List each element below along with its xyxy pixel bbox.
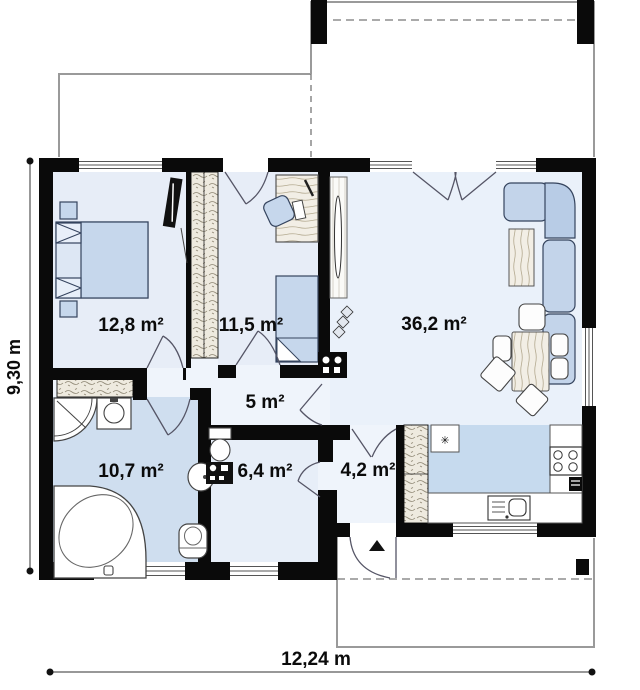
dimension-height-label: 9,30 m [4, 339, 24, 395]
stove [550, 447, 582, 475]
french-door-opening-terrace [412, 158, 496, 172]
toilet [179, 524, 207, 558]
boiler-icon: ✳ [440, 435, 449, 447]
entrance-porch [337, 537, 594, 647]
vestibule-label: 4,2 m² [341, 460, 396, 481]
floor-plan: ✳ [0, 0, 640, 690]
terrace-column-left [311, 0, 327, 44]
window-wc [230, 562, 278, 580]
bedroom-2-label: 11,5 m² [219, 315, 283, 336]
wall-right-upper [582, 172, 596, 328]
entrance-arrow-icon [369, 540, 385, 551]
bathroom-label: 10,7 m² [98, 461, 163, 482]
nightstand [60, 202, 77, 219]
washing-machine [206, 462, 233, 484]
wall-central [318, 172, 330, 352]
door-opening-bedroom2-garden [223, 158, 268, 172]
terrace [311, 0, 594, 157]
tv [335, 196, 342, 278]
hall-closet [57, 379, 133, 397]
window-living-east [582, 328, 596, 406]
window-living-right [496, 158, 536, 172]
roof-eaves-outline [59, 74, 311, 157]
pillow [56, 223, 81, 243]
window-kitchen [453, 523, 537, 537]
bedroom-wardrobe [191, 172, 218, 358]
dimension-width-label: 12,24 m [281, 649, 351, 670]
wall-right-lower [582, 406, 596, 537]
nightstand [60, 301, 77, 317]
window-bedroom1 [79, 158, 162, 172]
terrace-column-right [577, 0, 594, 44]
entrance-door-opening [350, 523, 396, 537]
dimension-height: 9,30 m [4, 158, 34, 575]
washbasin [97, 398, 131, 429]
oven [569, 477, 582, 491]
window-living-left [370, 158, 412, 172]
dimension-width: 12,24 m [47, 649, 596, 676]
wc-label: 6,4 m² [238, 461, 293, 482]
porch-column [576, 559, 589, 575]
wall-left [39, 172, 53, 580]
coffee-table [509, 229, 534, 286]
vestibule-floor [333, 440, 396, 523]
dining-table [512, 332, 549, 391]
kitchen-sink [488, 496, 530, 520]
wall-bedroom1-bedroom2 [186, 172, 191, 368]
floor-plan-drawing: ✳ [0, 0, 640, 690]
fireplace [318, 352, 347, 378]
living-room-label: 36,2 m² [401, 314, 466, 335]
bedroom-1-label: 12,8 m² [98, 315, 163, 336]
door-entrance [350, 537, 396, 578]
hall-label: 5 m² [245, 392, 284, 413]
wc-toilet [209, 428, 231, 461]
pillow [56, 278, 81, 298]
